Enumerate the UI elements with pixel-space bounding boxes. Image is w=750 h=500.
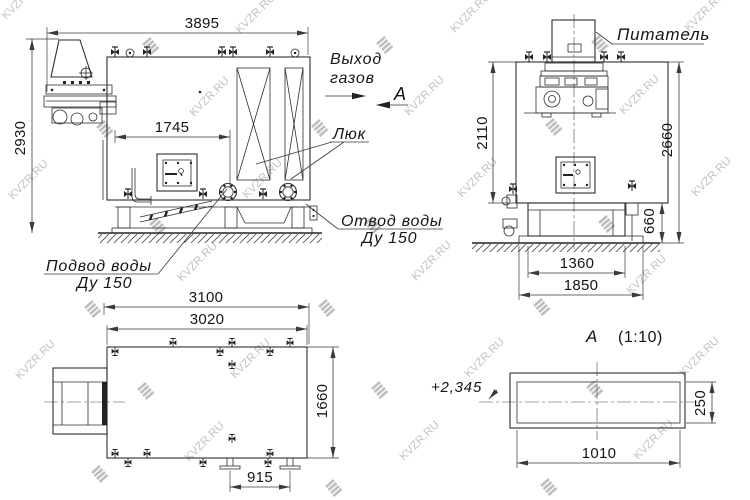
section-title-scale: (1:10) xyxy=(618,329,663,346)
dim-plan-pipe-spacing: 915 xyxy=(247,469,273,486)
section-title-mark: А xyxy=(585,327,598,346)
dim-section-height: 250 xyxy=(692,390,709,416)
dim-door-offset: 1745 xyxy=(155,119,190,136)
dim-plan-depth: 1660 xyxy=(314,384,331,419)
dim-front-base-height: 660 xyxy=(641,208,658,234)
dim-plan-body-width: 3020 xyxy=(190,311,225,328)
dim-front-upper-height: 2110 xyxy=(474,116,491,149)
ground-front xyxy=(472,243,660,252)
label-water-outlet-line2: Ду 150 xyxy=(360,230,417,247)
label-water-outlet-line1: Отвод воды xyxy=(341,213,442,230)
dim-plan-overall-width: 3100 xyxy=(189,289,224,306)
label-gas-outlet-line2: газов xyxy=(330,70,375,87)
dim-side-height: 2930 xyxy=(12,121,29,156)
dim-section-width: 1010 xyxy=(582,445,617,462)
dim-front-total-height: 2660 xyxy=(659,123,676,158)
technical-drawing: KVZR.RUKVZR.RUKVZR.RUKVZR.RUKVZR.RUKVZR.… xyxy=(0,0,750,500)
drawing-canvas: KVZR.RUKVZR.RUKVZR.RUKVZR.RUKVZR.RUKVZR.… xyxy=(0,0,750,500)
ground-side xyxy=(98,233,322,243)
label-hatch: Люк xyxy=(332,126,367,143)
dim-side-width: 3895 xyxy=(185,15,220,32)
label-water-inlet-line1: Подвод воды xyxy=(46,258,152,275)
dim-front-frame-width: 1850 xyxy=(564,277,599,294)
label-water-inlet-line2: Ду 150 xyxy=(75,275,132,292)
section-mark-side: А xyxy=(393,84,407,104)
label-gas-outlet-line1: Выход xyxy=(330,51,382,68)
dim-front-base-width: 1360 xyxy=(560,255,595,272)
label-feeder: Питатель xyxy=(617,25,710,44)
elevation-mark: +2,345 xyxy=(431,379,482,396)
